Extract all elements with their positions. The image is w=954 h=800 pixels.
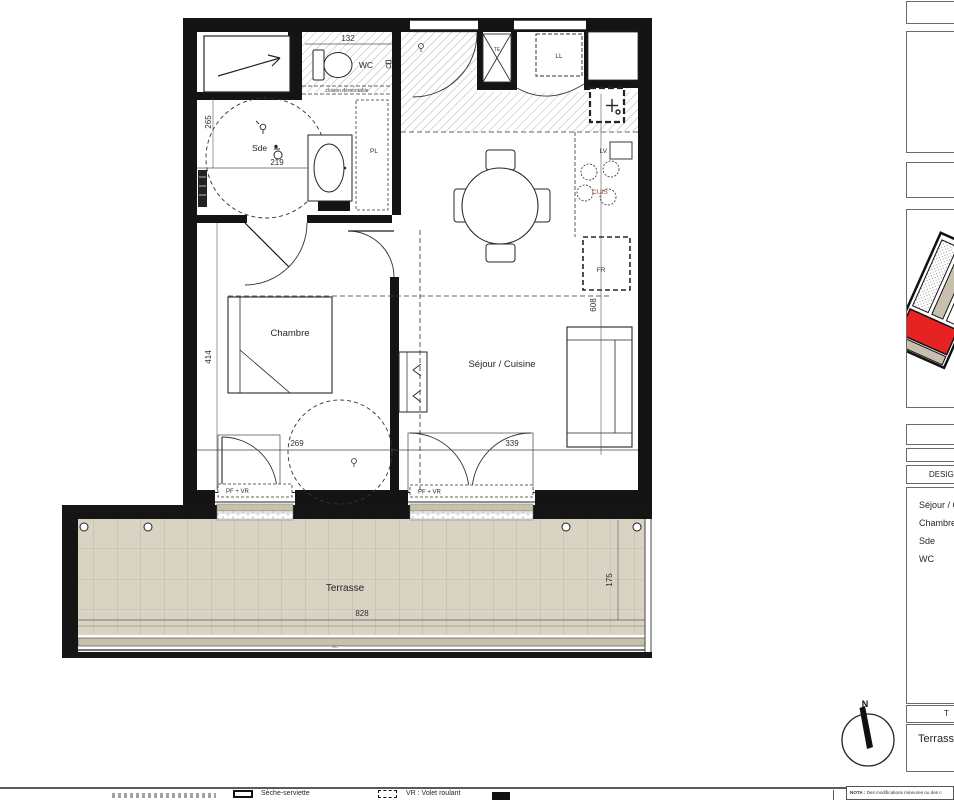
- window-label: PF + VR: [418, 490, 442, 496]
- dim-132: 132: [341, 34, 355, 43]
- dim-269: 269: [290, 439, 304, 448]
- cooktop-label: CUIS: [592, 189, 608, 196]
- dim-339: 339: [505, 439, 519, 448]
- sofa: [567, 327, 632, 447]
- schedule-row-wc: WC: [919, 550, 954, 568]
- titleblock-box-1: [906, 1, 954, 24]
- terrace-area: [62, 505, 652, 658]
- dining-set: [454, 150, 550, 262]
- wc-room-label: WC: [359, 60, 373, 70]
- legend-item-partial: [112, 793, 216, 798]
- closet-label: PL: [370, 148, 378, 155]
- duct-box: [588, 32, 638, 80]
- legend-label-radiator: Sèche-serviette: [261, 790, 310, 797]
- chair: [486, 244, 515, 262]
- toilet: [313, 50, 352, 80]
- tv-cabinet: [399, 352, 427, 412]
- railing-post: [562, 523, 570, 531]
- legend-separator-line: [0, 787, 846, 789]
- terrasse-schedule-label: Terrasse: [918, 733, 954, 745]
- railing-post: [80, 523, 88, 531]
- shutter-dashed-box-icon: [378, 790, 397, 798]
- schedule-row-sejour: Séjour / Cuisine: [919, 496, 954, 514]
- solid-box-icon: [492, 792, 510, 800]
- nota-text: Des modifications mineures ou des c: [867, 790, 942, 795]
- keyplan-thumbnail: [907, 210, 954, 406]
- titleblock-box-3: [906, 162, 954, 198]
- room-schedule-box: Séjour / Cuisine Chambre Sde WC: [906, 487, 954, 704]
- radiator-icon: [233, 790, 253, 798]
- legend-label-vr: VR : Volet roulant: [406, 790, 460, 797]
- cooktop: [577, 161, 619, 205]
- washer-label: LL: [555, 53, 563, 60]
- designation-header: DESIGNATION: [906, 465, 954, 484]
- schedule-row-chambre: Chambre: [919, 514, 954, 532]
- dim-219: 219: [270, 158, 284, 167]
- sejour-room-label: Séjour / Cuisine: [468, 359, 535, 370]
- dim-828: 828: [355, 609, 369, 618]
- window-chambre: PF + VR: [215, 435, 295, 520]
- chair: [486, 150, 515, 170]
- shower-tray: [204, 36, 290, 92]
- wheelchair-icon: [274, 145, 282, 159]
- keyplan-box: [906, 209, 954, 408]
- railing-post: [144, 523, 152, 531]
- top-window-strip: [514, 20, 586, 30]
- total-header-label: T: [944, 709, 949, 718]
- dim-175: 175: [605, 573, 614, 587]
- floorplan-drawing: TE LL Sde: [0, 0, 954, 800]
- dim-265: 265: [204, 115, 213, 129]
- compass-needle-icon: [860, 706, 874, 749]
- window-label: PF + VR: [226, 489, 250, 495]
- total-header-box: T: [906, 705, 954, 723]
- bed: [228, 297, 332, 393]
- terrace-railing-band: [78, 638, 645, 646]
- chambre-room-label: Chambre: [270, 328, 309, 339]
- sde-room-label: Sde: [252, 143, 267, 153]
- titleblock-box-2: [906, 31, 954, 153]
- guardrail-label: GC: [332, 644, 338, 649]
- round-table: [462, 168, 538, 244]
- titleblock-box-4: [906, 424, 954, 445]
- window-handle-icon: [352, 459, 357, 468]
- titleblock-box-5: [906, 448, 954, 462]
- washing-machine-recess: LL: [517, 32, 584, 96]
- schedule-row-sde: Sde: [919, 532, 954, 550]
- floorplan-page: TE LL Sde: [0, 0, 954, 800]
- turning-circle: [288, 400, 392, 504]
- fridge: [583, 237, 630, 290]
- railing-post: [633, 523, 641, 531]
- technical-shaft: TE: [483, 34, 511, 82]
- dim-608: 608: [589, 298, 598, 312]
- closet-pl: [356, 100, 388, 210]
- shaft-label: TE: [494, 47, 501, 53]
- partition-label: cloison démontable: [325, 88, 368, 94]
- terrasse-schedule-box: Terrasse: [906, 724, 954, 772]
- washbasin: [308, 135, 352, 201]
- towel-radiator: [198, 170, 207, 207]
- dishwasher: [610, 142, 632, 159]
- nota-prefix: NOTA :: [850, 790, 865, 795]
- north-compass: N: [838, 695, 898, 775]
- dim-414: 414: [204, 350, 213, 364]
- designation-header-label: DESIGNATION: [929, 470, 954, 479]
- terrasse-room-label: Terrasse: [326, 583, 365, 594]
- bedroom: Chambre: [228, 223, 394, 504]
- shower-mixer-icon: [256, 121, 266, 134]
- nota-box: NOTA : Des modifications mineures ou des…: [846, 786, 954, 800]
- legend-box-edge: [833, 790, 834, 800]
